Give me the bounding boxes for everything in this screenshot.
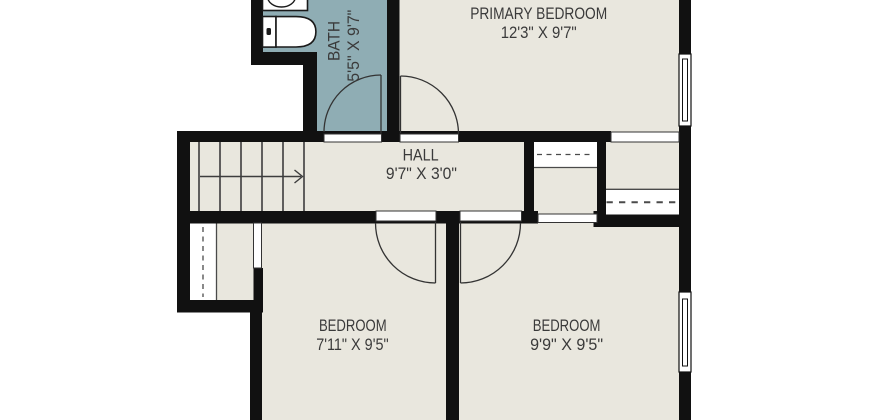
svg-text:5'5" X 9'7": 5'5" X 9'7" bbox=[345, 9, 363, 81]
svg-text:9'7" X 3'0": 9'7" X 3'0" bbox=[386, 165, 457, 183]
svg-text:9'9" X 9'5": 9'9" X 9'5" bbox=[530, 336, 603, 354]
svg-text:7'11" X 9'5": 7'11" X 9'5" bbox=[316, 336, 389, 354]
svg-text:HALL: HALL bbox=[403, 146, 439, 164]
svg-text:PRIMARY BEDROOM: PRIMARY BEDROOM bbox=[470, 5, 607, 23]
svg-text:12'3" X 9'7": 12'3" X 9'7" bbox=[501, 24, 577, 42]
svg-text:BATH: BATH bbox=[325, 21, 343, 61]
svg-text:BEDROOM: BEDROOM bbox=[533, 317, 601, 335]
svg-text:BEDROOM: BEDROOM bbox=[319, 317, 387, 335]
